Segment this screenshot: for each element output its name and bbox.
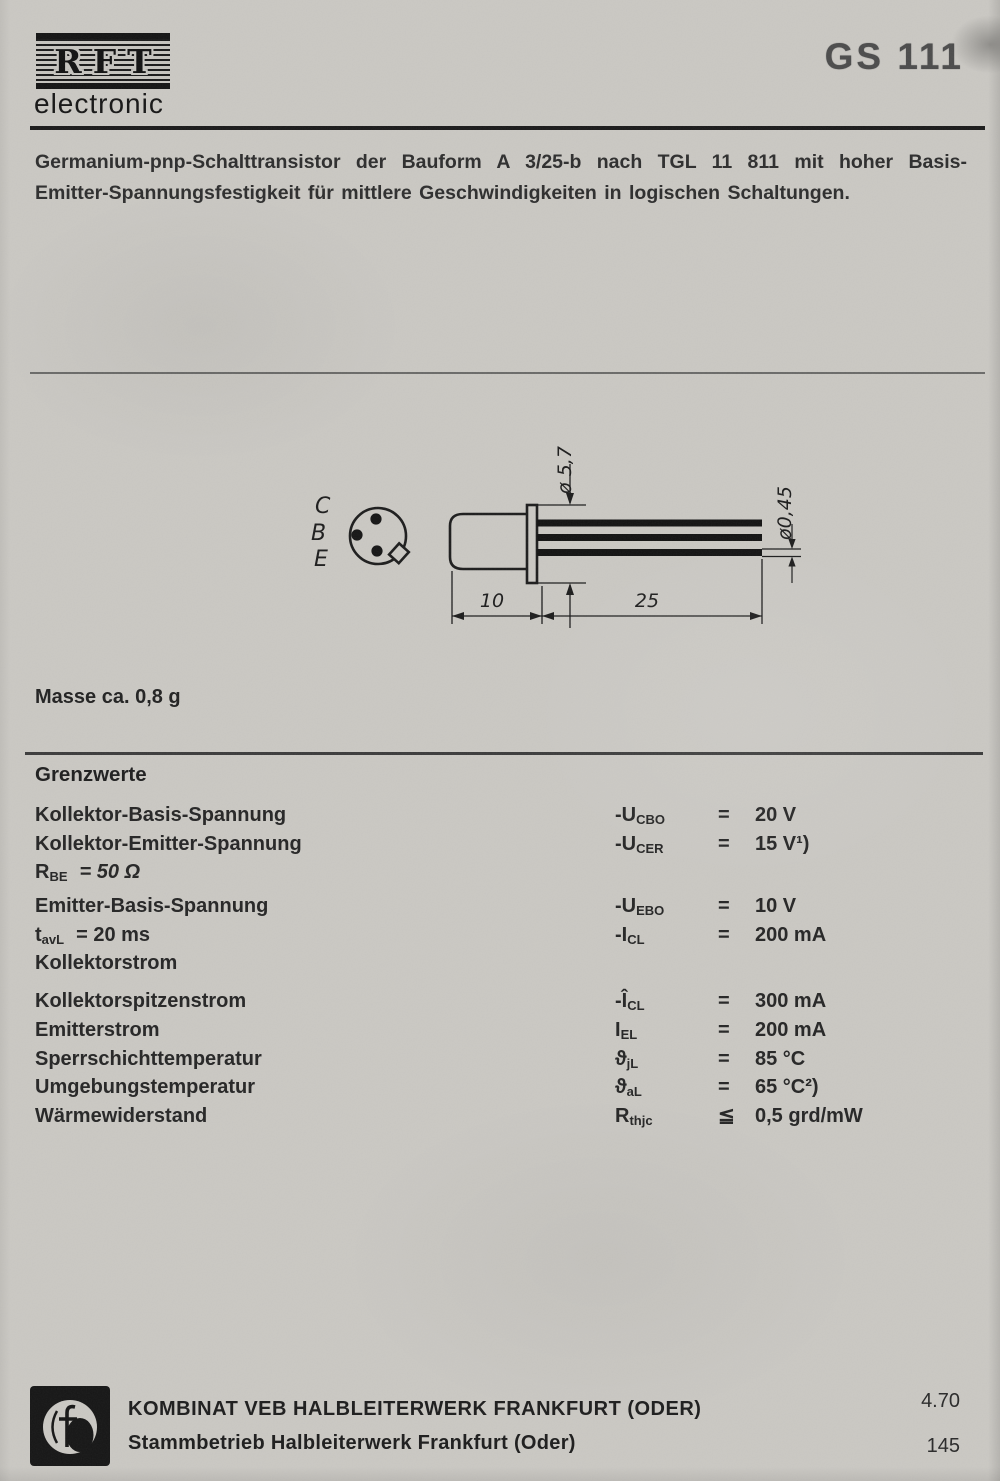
- table-row: Kollektor-Emitter-Spannung -UCER = 15 V¹…: [35, 830, 965, 859]
- row-symbol: ϑaL: [615, 1073, 718, 1102]
- dim-body-length-label: 10: [480, 590, 504, 612]
- dim-lead-diameter-label: ø0,45: [774, 486, 796, 541]
- dim-lead-diameter: ø0,45: [762, 486, 801, 583]
- row-symbol: -ICL: [615, 921, 718, 950]
- description-line-1: Germanium-pnp-Schalttransistor der Baufo…: [35, 147, 967, 178]
- row-value: 200 mA: [755, 1016, 965, 1045]
- row-symbol: ϑjL: [615, 1045, 718, 1074]
- rft-logo-text: RFT: [43, 45, 162, 78]
- transistor-leads: [537, 520, 762, 557]
- row-value: 0,5 grd/mW: [755, 1102, 965, 1131]
- row-relation: =: [718, 987, 755, 1016]
- pin-label-emitter: E: [314, 547, 328, 572]
- row-label: Emitterstrom: [35, 1016, 615, 1045]
- table-row: Kollektorstrom: [35, 949, 965, 978]
- table-row: tavL= 20 ms -ICL = 200 mA: [35, 921, 965, 950]
- row-relation: =: [718, 1045, 755, 1074]
- row-label: Kollektor-Emitter-Spannung: [35, 830, 615, 859]
- row-value: 10 V: [755, 892, 965, 921]
- row-symbol: -ÎCL: [615, 987, 718, 1016]
- company-block: KOMBINAT VEB HALBLEITERWERK FRANKFURT (O…: [128, 1398, 701, 1455]
- row-value: 15 V¹): [755, 830, 965, 859]
- row-relation: ≦: [718, 1102, 755, 1131]
- row-symbol: -UCER: [615, 830, 718, 859]
- description-line-2: Emitter-Spannungsfestigkeit für mittlere…: [35, 178, 967, 209]
- table-row: Kollektorspitzenstrom -ÎCL = 300 mA: [35, 987, 965, 1016]
- row-label: Emitter-Basis-Spannung: [35, 892, 615, 921]
- dim-flange-diameter-label: ø 5,7: [554, 446, 576, 495]
- limits-rule: [25, 752, 983, 755]
- brand-subtitle: electronic: [34, 88, 164, 120]
- pin-label-base: B: [311, 521, 326, 546]
- table-row: Kollektor-Basis-Spannung -UCBO = 20 V: [35, 801, 965, 830]
- row-value: 85 °C: [755, 1045, 965, 1074]
- package-drawing: C B E: [295, 430, 815, 665]
- row-value: 65 °C²): [755, 1073, 965, 1102]
- table-row: Umgebungstemperatur ϑaL = 65 °C²): [35, 1073, 965, 1102]
- row-value: 200 mA: [755, 921, 965, 950]
- row-relation: =: [718, 921, 755, 950]
- limits-heading: Grenzwerte: [35, 763, 147, 787]
- side-view: [450, 505, 762, 583]
- row-symbol: -UCBO: [615, 801, 718, 830]
- table-row: Emitter-Basis-Spannung -UEBO = 10 V: [35, 892, 965, 921]
- row-label: Kollektorspitzenstrom: [35, 987, 615, 1016]
- row-label: RBE= 50 Ω: [35, 858, 615, 887]
- table-row: Sperrschichttemperatur ϑjL = 85 °C: [35, 1045, 965, 1074]
- row-label: Kollektor-Basis-Spannung: [35, 801, 615, 830]
- page-number: 145: [921, 1435, 960, 1458]
- description-paragraph: Germanium-pnp-Schalttransistor der Baufo…: [35, 147, 967, 209]
- mass-note: Masse ca. 0,8 g: [35, 686, 181, 709]
- datasheet-page: RFT electronic GS 111 Germanium-pnp-Scha…: [0, 0, 1000, 1481]
- row-label: Kollektorstrom: [35, 949, 615, 978]
- row-relation: =: [718, 801, 755, 830]
- section-rule: [30, 372, 985, 374]
- transistor-body: [450, 514, 527, 569]
- table-row-condition: RBE= 50 Ω: [35, 858, 965, 887]
- row-relation: =: [718, 1073, 755, 1102]
- rft-logo: RFT: [36, 33, 170, 89]
- hfo-logo: [30, 1386, 110, 1466]
- logo-bowl-shape: [67, 1418, 94, 1452]
- company-line-2: Stammbetrieb Halbleiterwerk Frankfurt (O…: [128, 1432, 701, 1455]
- header-rule: [30, 126, 985, 130]
- pin-circle-view: [350, 508, 409, 564]
- table-row: Emitterstrom IEL = 200 mA: [35, 1016, 965, 1045]
- date-code: 4.70: [921, 1390, 960, 1413]
- row-label: tavL= 20 ms: [35, 921, 615, 950]
- row-label: Wärmewiderstand: [35, 1102, 615, 1131]
- limits-table: Kollektor-Basis-Spannung -UCBO = 20 V Ko…: [35, 801, 965, 1131]
- row-label: Sperrschichttemperatur: [35, 1045, 615, 1074]
- pin-label-collector: C: [315, 494, 331, 519]
- dim-lead-length-label: 25: [635, 590, 659, 612]
- transistor-flange: [527, 505, 537, 583]
- company-line-1: KOMBINAT VEB HALBLEITERWERK FRANKFURT (O…: [128, 1398, 701, 1421]
- row-label: Umgebungstemperatur: [35, 1073, 615, 1102]
- folio-block: 4.70 145: [921, 1390, 960, 1458]
- paper-texture-overlay: [0, 0, 1000, 1481]
- row-value: 300 mA: [755, 987, 965, 1016]
- row-symbol: Rthjc: [615, 1102, 718, 1131]
- row-relation: =: [718, 892, 755, 921]
- row-value: 20 V: [755, 801, 965, 830]
- row-relation: =: [718, 830, 755, 859]
- part-number: GS 111: [825, 36, 964, 78]
- row-symbol: -UEBO: [615, 892, 718, 921]
- row-relation: =: [718, 1016, 755, 1045]
- row-symbol: IEL: [615, 1016, 718, 1045]
- table-row: Wärmewiderstand Rthjc ≦ 0,5 grd/mW: [35, 1102, 965, 1131]
